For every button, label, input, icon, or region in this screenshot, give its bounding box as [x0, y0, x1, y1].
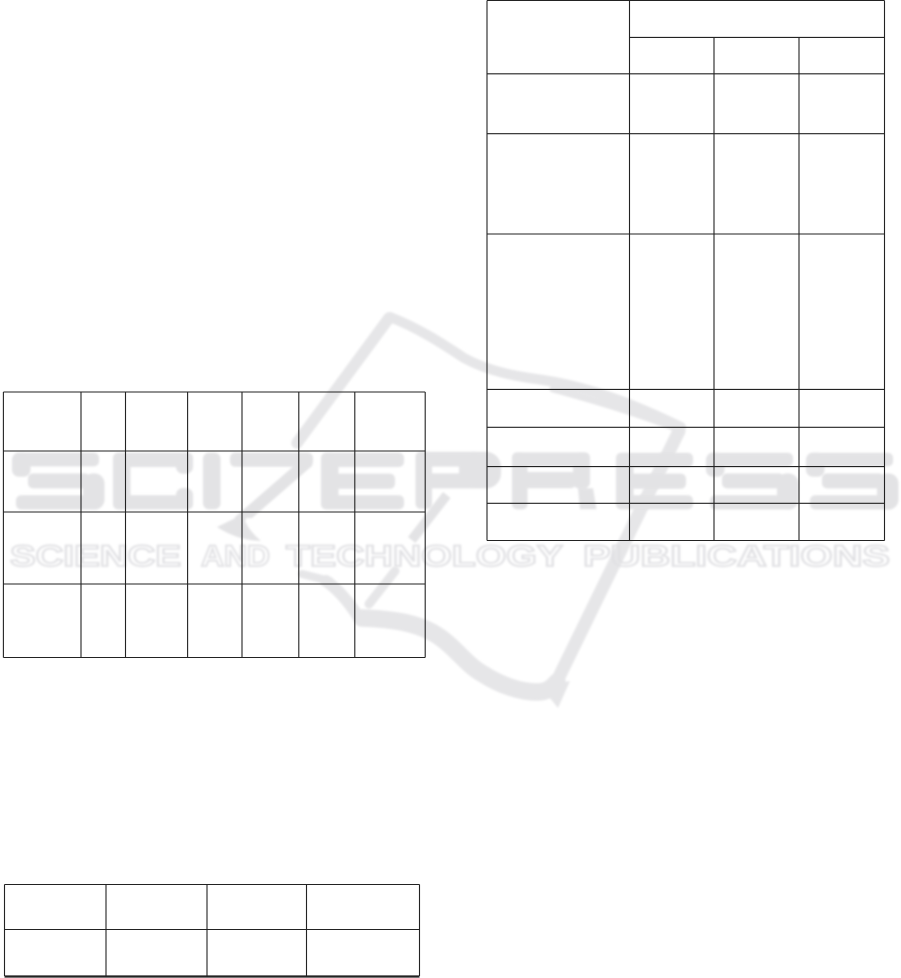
svg-text:AND: AND	[201, 540, 270, 573]
svg-text:SCIENCE: SCIENCE	[10, 540, 181, 573]
svg-text:PUBLICATIONS: PUBLICATIONS	[583, 540, 890, 573]
